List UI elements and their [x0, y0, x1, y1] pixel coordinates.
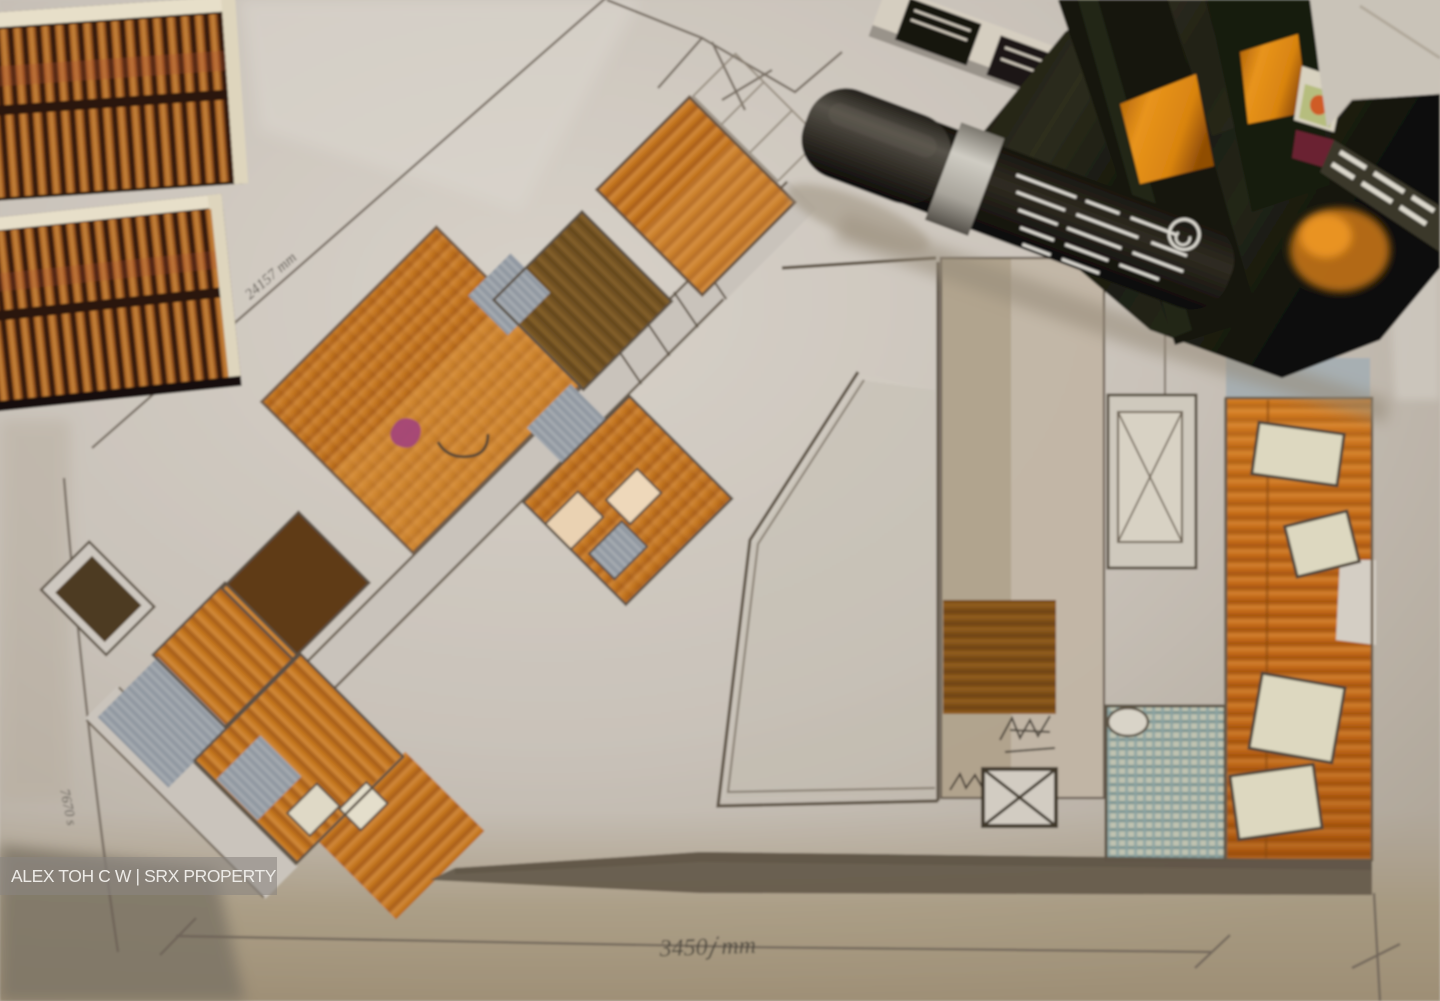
- svg-text:ALEX TOH C W | SRX PROPERTY: ALEX TOH C W | SRX PROPERTY: [11, 866, 277, 886]
- svg-text:3450𝑗 mm: 3450𝑗 mm: [658, 933, 756, 962]
